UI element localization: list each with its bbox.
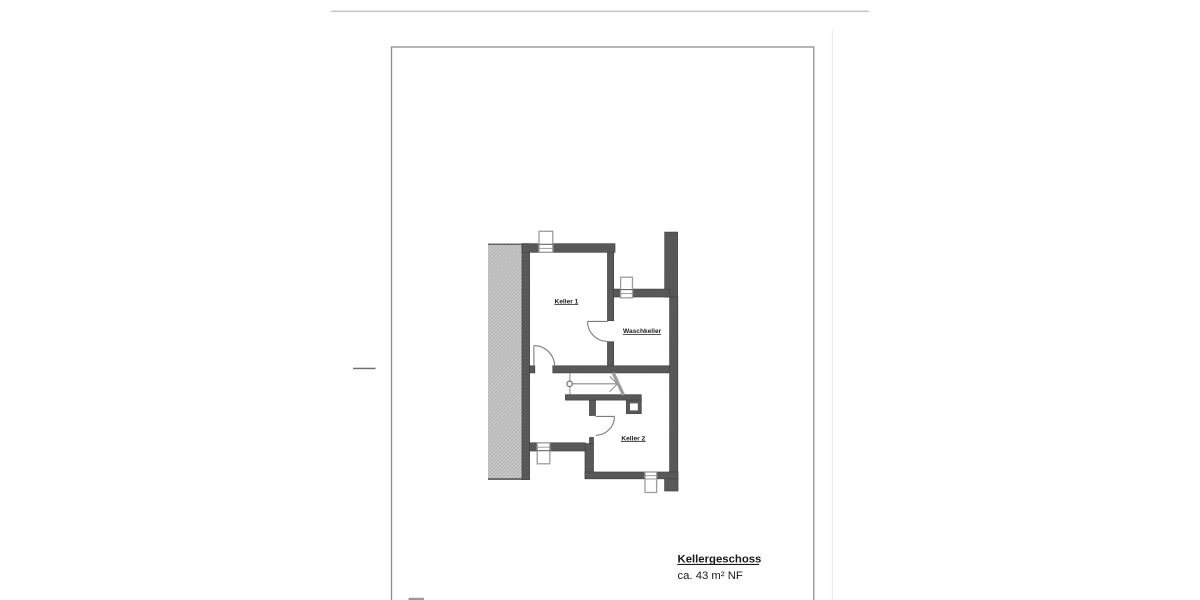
svg-text:Kellergeschoss: Kellergeschoss [678,554,762,566]
svg-text:ca. 43 m² NF: ca. 43 m² NF [678,570,743,582]
